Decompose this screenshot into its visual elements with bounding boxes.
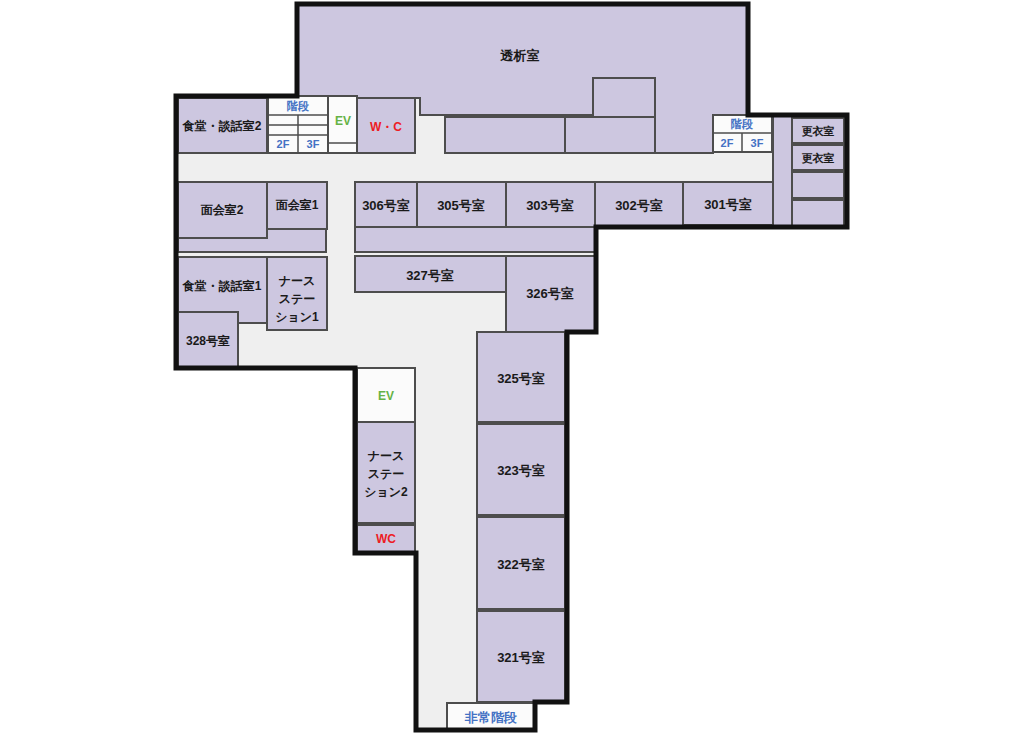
stairs-left-3f-label: 3F xyxy=(307,138,320,150)
svg-text:ション2: ション2 xyxy=(364,485,408,499)
svg-text:ナース: ナース xyxy=(368,449,405,463)
stairs-left-label: 階段 xyxy=(287,100,310,112)
room-meeting-2-label: 面会室2 xyxy=(200,203,244,217)
elevator-bottom-label: EV xyxy=(378,389,394,403)
room-301-label: 301号室 xyxy=(704,197,752,212)
room-302-label: 302号室 xyxy=(615,198,663,213)
room-nurse-station-1-label: ナース ステー ション1 xyxy=(275,274,319,324)
svg-text:ステー: ステー xyxy=(368,467,405,481)
room-wc-small-label: WC xyxy=(376,532,396,546)
stairs-right-label: 階段 xyxy=(731,118,754,130)
unlabeled-room-a xyxy=(445,117,565,153)
room-328-label: 328号室 xyxy=(186,334,230,348)
room-dining-lounge-1-label: 食堂・談話室1 xyxy=(182,279,262,293)
unlabeled-room-d xyxy=(355,227,595,252)
room-dialysis-annex xyxy=(593,78,655,117)
room-locker-2-label: 更衣室 xyxy=(802,152,835,165)
stairs-right-3f-label: 3F xyxy=(751,137,764,149)
unlabeled-room-e xyxy=(773,115,792,227)
stairs-left-2f-label: 2F xyxy=(277,138,290,150)
room-322-label: 322号室 xyxy=(497,557,545,572)
room-306-label: 306号室 xyxy=(362,198,410,213)
room-dialysis-label: 透析室 xyxy=(500,48,540,63)
svg-text:ション1: ション1 xyxy=(275,310,319,324)
room-321-label: 321号室 xyxy=(497,650,545,665)
unlabeled-room-g xyxy=(792,200,844,227)
room-dining-lounge-2-label: 食堂・談話室2 xyxy=(182,119,262,133)
room-meeting-1-label: 面会室1 xyxy=(275,198,319,212)
elevator-top-label: EV xyxy=(335,114,351,128)
room-303-label: 303号室 xyxy=(526,198,574,213)
room-locker-1-label: 更衣室 xyxy=(802,125,835,138)
svg-text:ステー: ステー xyxy=(279,292,316,306)
stairs-right-2f-label: 2F xyxy=(721,137,734,149)
room-327-label: 327号室 xyxy=(406,268,454,283)
svg-text:ナース: ナース xyxy=(279,274,316,288)
room-326-label: 326号室 xyxy=(526,286,574,301)
room-nurse-station-2-label: ナース ステー ション2 xyxy=(364,449,408,499)
unlabeled-room-b xyxy=(565,117,655,153)
room-305-label: 305号室 xyxy=(437,198,485,213)
emergency-stairs-label: 非常階段 xyxy=(464,710,517,725)
unlabeled-room-f xyxy=(792,172,844,198)
room-wc-main-label: W・C xyxy=(370,120,402,134)
room-323-label: 323号室 xyxy=(497,463,545,478)
room-325-label: 325号室 xyxy=(497,371,545,386)
floor-plan-svg: 透析室 食堂・談話室2 階段 2F 3F EV W・C 面会室2 面会室1 食堂… xyxy=(0,0,1024,736)
floor-plan: 透析室 食堂・談話室2 階段 2F 3F EV W・C 面会室2 面会室1 食堂… xyxy=(0,0,1024,736)
